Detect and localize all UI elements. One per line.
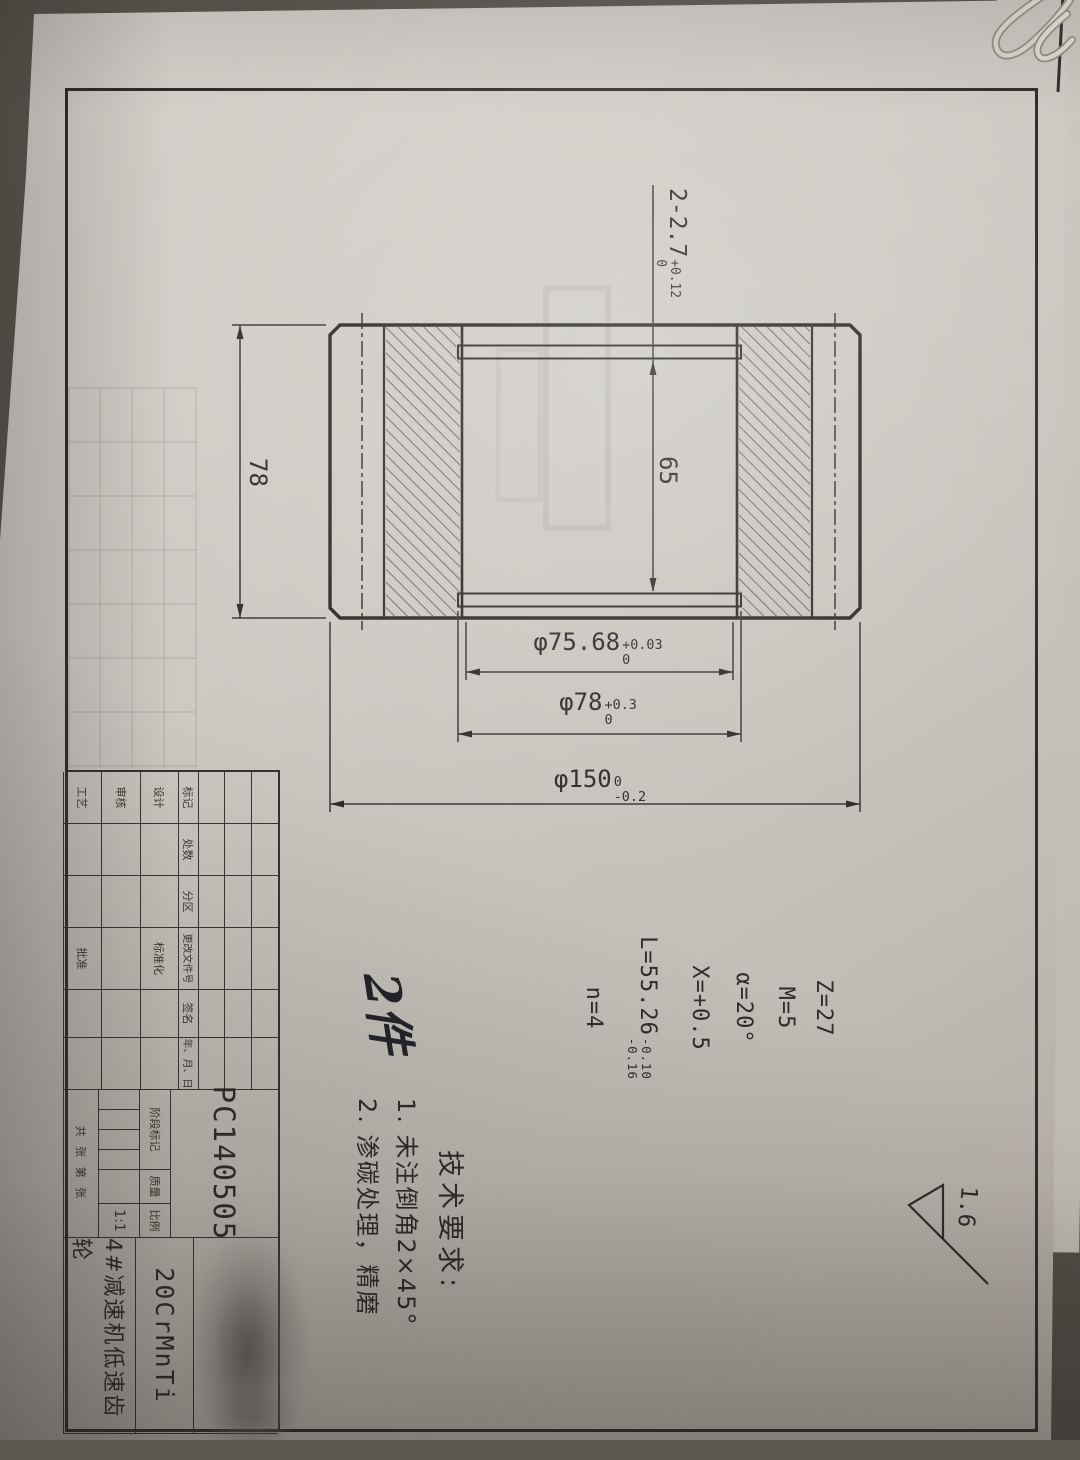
param-pressure-angle: α=20° [731, 933, 756, 1083]
title-block: 标记 处数 分区 更改文件号 签名 年、月、日 设计 标准化 审核 工艺 批准 [65, 770, 280, 1432]
label-weight: 质量 [139, 1170, 170, 1204]
faint-revision-grid [69, 388, 196, 768]
header-date: 年、月、日 [178, 1038, 198, 1090]
param-teeth: Z=27 [811, 933, 836, 1083]
bore-lines [462, 325, 737, 618]
groove-right [458, 594, 741, 607]
header-doc-no: 更改文件号 [178, 928, 198, 990]
role-standardization: 标准化 [140, 928, 178, 990]
dim-bore-dia-label: φ75.68+0.030 [533, 628, 662, 668]
titleblock-company-cell [193, 1238, 278, 1434]
dim-width-label: 78 [244, 458, 272, 487]
dim-groove-dia-label: φ78+0.30 [559, 688, 637, 728]
handwritten-quantity-note: 2件 [350, 969, 433, 1056]
drawing-landscape-content: 78 65 2-2.7+0.120 φ75.68+0.030 φ78+0.30 … [65, 88, 1038, 1432]
role-process: 工艺 [63, 772, 101, 824]
hatch-upper-rim [739, 327, 810, 616]
role-approve: 批准 [63, 928, 101, 990]
dim-outer-dia-label: φ1500-0.2 [554, 765, 646, 805]
tech-req-item-2: 2. 渗碳处理，精磨 [352, 1098, 387, 1317]
param-span-length: L=55.26-0.10-0.16 [625, 933, 660, 1083]
role-design: 设计 [140, 772, 178, 824]
stage-weight-scale-row: 阶段标记 质量 比例 [139, 1090, 170, 1238]
roughness-value: 1.6 [952, 1185, 982, 1229]
param-span-teeth: n=4 [581, 933, 606, 1083]
revision-rows [198, 772, 278, 1090]
sheet-count-row: 共 张 第 张 [63, 1090, 98, 1238]
scale-value: 1:1 [98, 1204, 139, 1238]
header-zone: 分区 [178, 876, 198, 928]
drawing-sheet: 78 65 2-2.7+0.120 φ75.68+0.030 φ78+0.30 … [0, 0, 1080, 1440]
tech-req-title: 技术要求: [433, 1150, 472, 1292]
titleblock-material: 20CrMnTi [135, 1238, 193, 1434]
hatch-lower-rim [386, 327, 460, 616]
dim-groove-note-label: 2-2.7+0.120 [652, 188, 690, 298]
signature-rows: 设计 标准化 审核 工艺 批准 [63, 772, 178, 1090]
stage-weight-scale-values: 1:1 [98, 1090, 139, 1238]
header-sign: 签名 [178, 990, 198, 1038]
titleblock-drawing-number: PC140505 [170, 1090, 278, 1238]
revision-header-row: 标记 处数 分区 更改文件号 签名 年、月、日 [178, 772, 198, 1090]
photo-of-engineering-drawing: { "sheet": { "drawing_no": "PC140505", "… [0, 0, 1080, 1440]
tech-req-item-1: 1. 未注倒角2×45° [391, 1098, 426, 1326]
dim-groove-span-label: 65 [654, 456, 682, 485]
header-count: 处数 [178, 824, 198, 876]
param-module: M=5 [773, 933, 798, 1083]
header-mark: 标记 [178, 772, 198, 824]
role-check: 审核 [101, 772, 140, 824]
label-scale: 比例 [139, 1204, 170, 1238]
paperclip-icon [930, 0, 1080, 142]
param-shift: X=+0.5 [687, 933, 712, 1083]
titleblock-part-name: 4#减速机低速齿轮 [63, 1238, 135, 1434]
label-stage-mark: 阶段标记 [139, 1090, 170, 1170]
